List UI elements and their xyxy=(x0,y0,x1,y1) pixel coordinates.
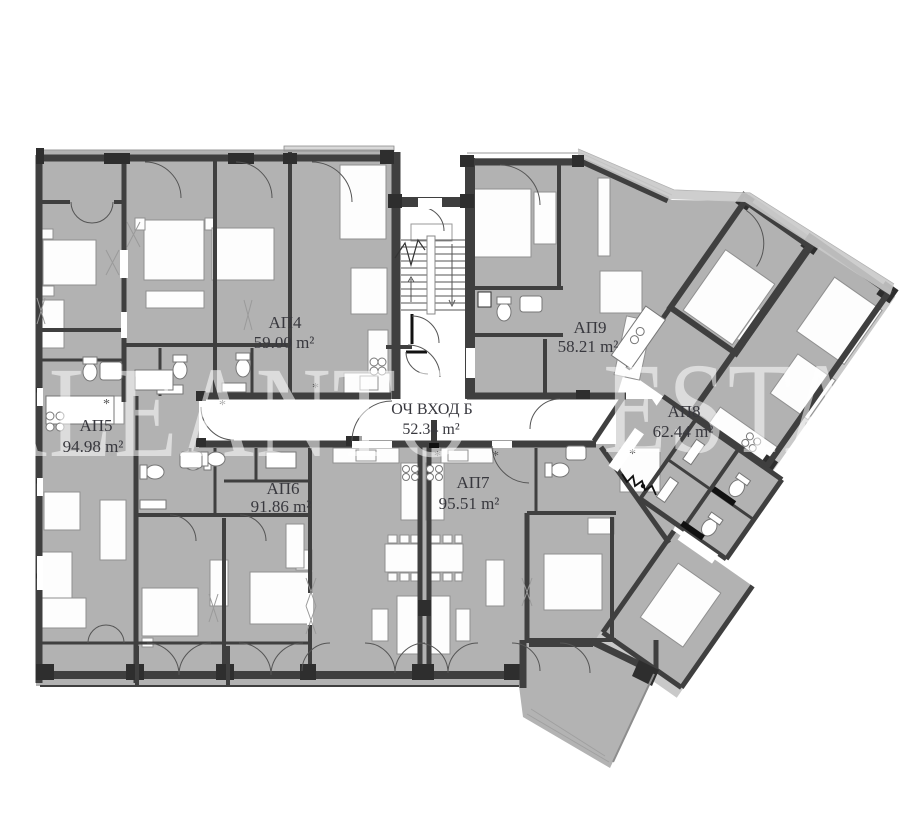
svg-text:58.21 m²: 58.21 m² xyxy=(558,337,619,356)
svg-text:АП7: АП7 xyxy=(456,473,490,492)
svg-text:94.98 m²: 94.98 m² xyxy=(63,437,124,456)
svg-text:АП5: АП5 xyxy=(79,416,112,435)
svg-text:АП8: АП8 xyxy=(667,402,700,421)
svg-text:ОЧ ВХОД Б: ОЧ ВХОД Б xyxy=(391,401,472,418)
svg-text:52.34 m²: 52.34 m² xyxy=(402,421,459,438)
svg-text:95.51 m²: 95.51 m² xyxy=(439,494,500,513)
svg-text:91.86 m²: 91.86 m² xyxy=(251,497,312,516)
svg-text:62.44 m²: 62.44 m² xyxy=(653,422,714,441)
svg-text:АП4: АП4 xyxy=(268,313,302,332)
svg-text:АП9: АП9 xyxy=(573,318,606,337)
svg-text:ESTA: ESTA xyxy=(603,337,861,481)
svg-text:59.00 m²: 59.00 m² xyxy=(254,333,315,352)
svg-text:АП6: АП6 xyxy=(266,479,299,498)
